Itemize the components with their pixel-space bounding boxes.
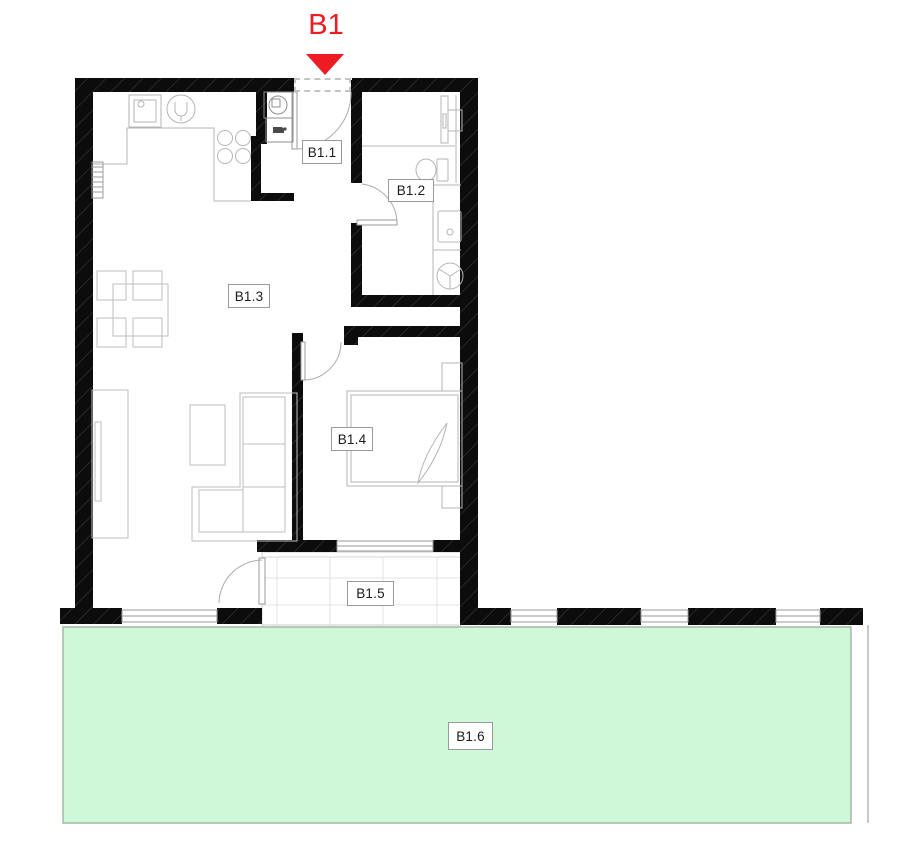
kitchen-round-fixture (167, 95, 195, 123)
dining-set (97, 271, 168, 347)
sofa (192, 393, 297, 541)
doors (219, 92, 397, 604)
nightstand (442, 363, 462, 391)
bedroom-door (301, 342, 341, 380)
coffee-table (190, 405, 225, 465)
wall-segment (460, 608, 511, 625)
unit-marker-label: B1 (296, 10, 356, 40)
window (122, 610, 217, 622)
floor-plan: B1 (0, 0, 918, 852)
room-label-b1-3: B1.3 (228, 284, 270, 308)
room-label-b1-4: B1.4 (331, 427, 373, 451)
wall-segment (557, 608, 641, 625)
tv-bench (92, 390, 128, 538)
living-room (92, 271, 297, 541)
cooktop (218, 131, 251, 164)
wall-segment (251, 136, 261, 201)
wall-segment (217, 608, 262, 624)
wall-segment (259, 193, 294, 201)
dining-table (113, 284, 168, 336)
chair (97, 318, 126, 347)
blanket-fold (418, 423, 447, 483)
shower (437, 263, 463, 289)
entrance-opening (294, 78, 351, 92)
wall-segment (351, 295, 462, 307)
kitchen-counter (93, 128, 251, 201)
room-label-b1-6: B1.6 (448, 722, 493, 750)
wall-segment (433, 540, 462, 552)
wall-segment (351, 80, 362, 183)
towel-radiator (441, 96, 448, 143)
wall-segment (75, 78, 93, 608)
wall-segment (352, 78, 478, 92)
wall-segment (344, 326, 358, 345)
wall-segment (344, 326, 462, 337)
wall-segment (256, 90, 267, 144)
kitchen-sink (129, 95, 161, 127)
entrance-arrow-icon (306, 54, 344, 75)
window (511, 610, 557, 622)
radiator (92, 162, 103, 198)
chair (97, 271, 126, 300)
window (641, 610, 688, 622)
boiler (448, 110, 462, 131)
wall-segment (351, 223, 362, 307)
window (337, 541, 433, 551)
utility-appliance (266, 118, 293, 142)
wall-segment (820, 608, 863, 625)
wall-segment (75, 78, 294, 92)
wall-segment (257, 540, 337, 552)
washbasin (438, 211, 461, 242)
walls (60, 78, 863, 625)
room-label-b1-2: B1.2 (388, 179, 434, 202)
washing-machine (264, 92, 293, 118)
chair (133, 271, 162, 300)
room-label-b1-5: B1.5 (347, 581, 394, 606)
chair (133, 318, 162, 347)
toilet (416, 159, 448, 181)
wall-segment (460, 78, 478, 625)
room-label-b1-1: B1.1 (302, 140, 342, 164)
window (776, 610, 820, 622)
nightstand (442, 486, 462, 508)
balcony-door (219, 558, 265, 604)
wall-segment (688, 608, 776, 625)
wall-segment (60, 608, 122, 624)
